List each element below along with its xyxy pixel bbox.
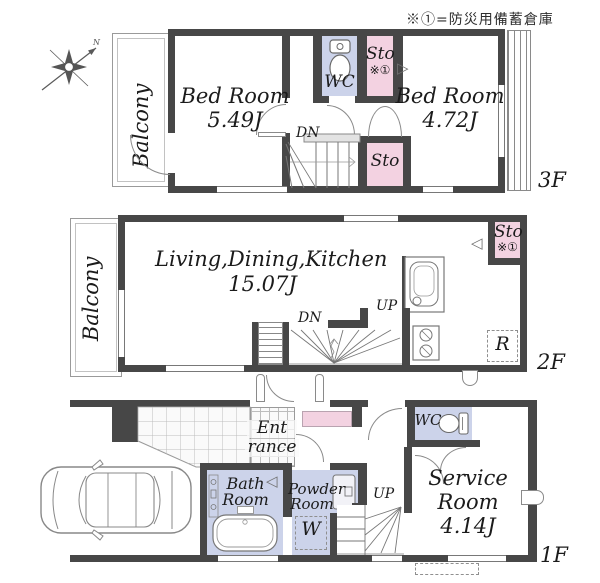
side-door-leaf-1f <box>521 490 544 505</box>
sto2-label: Sto <box>368 153 402 171</box>
entrance-door-leaf-1 <box>256 374 265 402</box>
sto-2f-mark: ※① <box>494 241 521 253</box>
stairs-2f <box>289 328 402 365</box>
bathtub-icon <box>212 514 278 552</box>
compass-north-label: N <box>92 38 101 47</box>
closet-1f <box>302 411 352 427</box>
up-label-1f: UP <box>373 487 394 502</box>
fridge-label: R <box>487 335 518 355</box>
bedroom2-name: Bed Room <box>380 86 520 108</box>
ldk-name: Living,Dining,Kitchen <box>155 249 370 271</box>
approach-mark <box>415 563 479 575</box>
powder-door-arc <box>296 434 324 462</box>
stairwell-down-2f <box>258 322 283 365</box>
compass-icon: N <box>36 34 102 100</box>
floor-label-3f: 3F <box>538 168 566 192</box>
sto1-name: Sto <box>366 46 394 64</box>
service-label-2: Room <box>413 492 523 514</box>
floor-label-2f: 2F <box>537 350 565 374</box>
bath-label-2: Room <box>213 492 278 509</box>
washer-label: W <box>295 520 327 540</box>
sto1-access-triangle: ▷ <box>397 61 409 76</box>
service-label-3: 4.14J <box>413 516 523 538</box>
door-leaf-2f-bottom <box>462 370 478 386</box>
stairs-1f <box>337 505 404 555</box>
up-label-2f: UP <box>376 299 397 314</box>
sto1-mark: ※① <box>366 64 394 76</box>
powder-label-2: Room <box>288 497 336 513</box>
dn-label-2f: DN <box>298 311 321 326</box>
wc-3f-label: WC <box>322 74 357 92</box>
bedroom1-size: 5.49J <box>165 110 305 132</box>
floor-label-1f: 1F <box>540 543 568 567</box>
entrance-door-leaf-2 <box>315 374 324 402</box>
bedroom1-name: Bed Room <box>165 86 305 108</box>
entrance-door-arc <box>266 375 294 402</box>
stairs-3f <box>286 134 360 190</box>
kitchen-sink-icon <box>404 256 446 314</box>
toilet-icon-1f <box>438 410 470 437</box>
storage-note: ※①=防災用備蓄倉庫 <box>406 9 554 29</box>
entrance-label-1: Ent <box>247 420 297 438</box>
floor-plan: ※①=防災用備蓄倉庫 N Balcony <box>0 0 600 583</box>
stove-icon <box>412 325 440 361</box>
entrance-label-2: rance <box>245 439 299 457</box>
service-label-1: Service <box>413 468 523 490</box>
balcony-2f-label: Balcony <box>81 249 103 349</box>
car-icon <box>36 458 196 542</box>
ldk-size: 15.07J <box>185 274 340 296</box>
sto-2f-access-triangle: ◁ <box>471 236 483 251</box>
bedroom2-size: 4.72J <box>380 110 520 132</box>
wc-1f-label: WC <box>414 413 442 429</box>
hall-door-arc-1f <box>368 408 402 440</box>
